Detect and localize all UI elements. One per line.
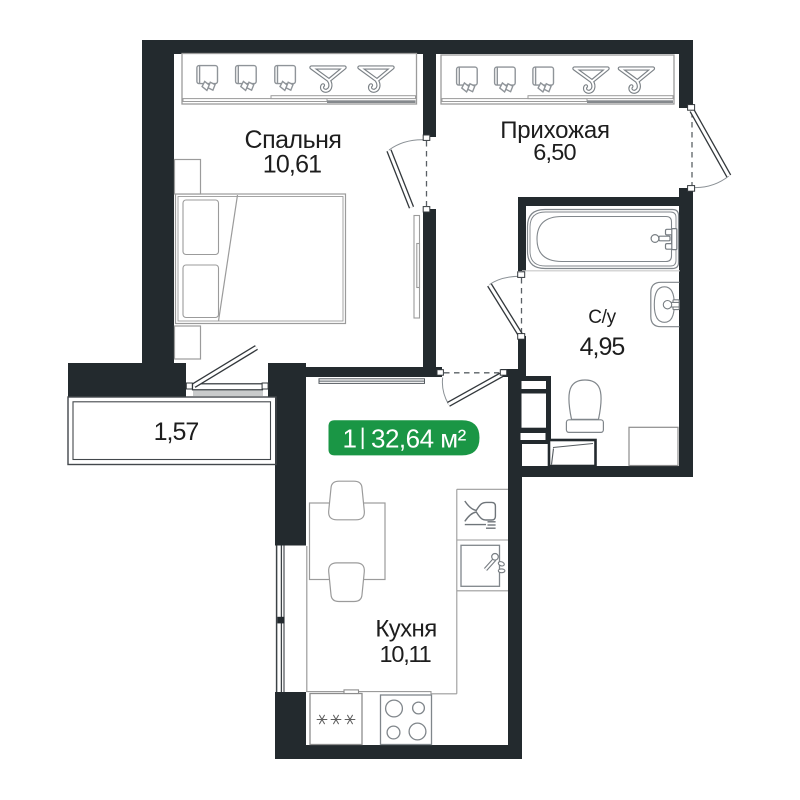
svg-text:10,61: 10,61 <box>263 150 322 178</box>
svg-text:1,57: 1,57 <box>154 418 199 446</box>
svg-text:4,95: 4,95 <box>580 333 625 361</box>
svg-text:С/у: С/у <box>588 307 616 328</box>
svg-text:6,50: 6,50 <box>533 139 576 165</box>
svg-text:32,64 м²: 32,64 м² <box>371 423 467 453</box>
svg-text:10,11: 10,11 <box>379 641 430 667</box>
svg-text:Кухня: Кухня <box>375 615 436 642</box>
svg-text:1: 1 <box>343 423 357 453</box>
